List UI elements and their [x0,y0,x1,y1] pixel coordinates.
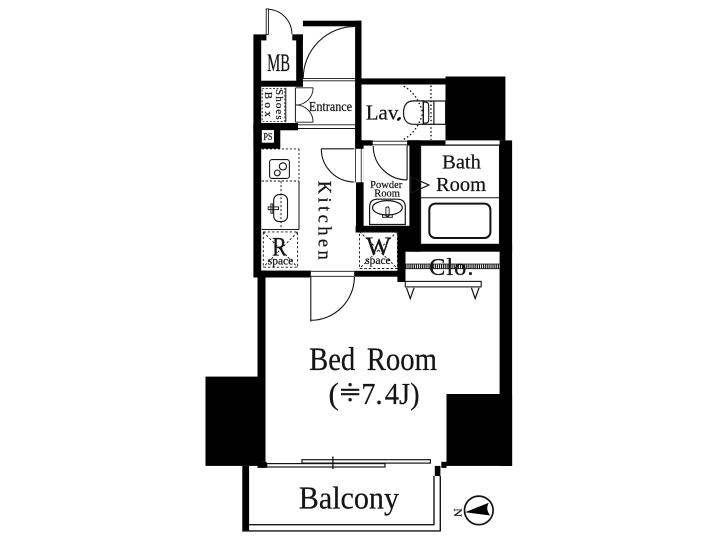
svg-text:Lav.: Lav. [366,101,403,125]
svg-text:space: space [268,256,294,268]
svg-text:N: N [451,508,465,517]
svg-text:Room: Room [374,188,400,199]
svg-text:Shoes: Shoes [273,89,285,121]
svg-text:7.: 7. [361,377,382,411]
svg-text:Room: Room [436,174,486,196]
svg-text:Kitchen: Kitchen [313,181,333,263]
svg-text:4J): 4J) [385,377,420,411]
svg-text:Clo.: Clo. [429,254,475,281]
svg-text:space: space [365,255,391,267]
svg-text:Balcony: Balcony [299,480,400,516]
svg-text:MB: MB [267,48,290,77]
svg-text:(: ( [329,376,339,411]
svg-text:Box: Box [262,92,274,121]
svg-text:PS: PS [263,132,272,143]
svg-text:Entrance: Entrance [309,99,352,114]
svg-text:Bath: Bath [442,152,481,174]
svg-text:Bed Room: Bed Room [309,340,437,377]
